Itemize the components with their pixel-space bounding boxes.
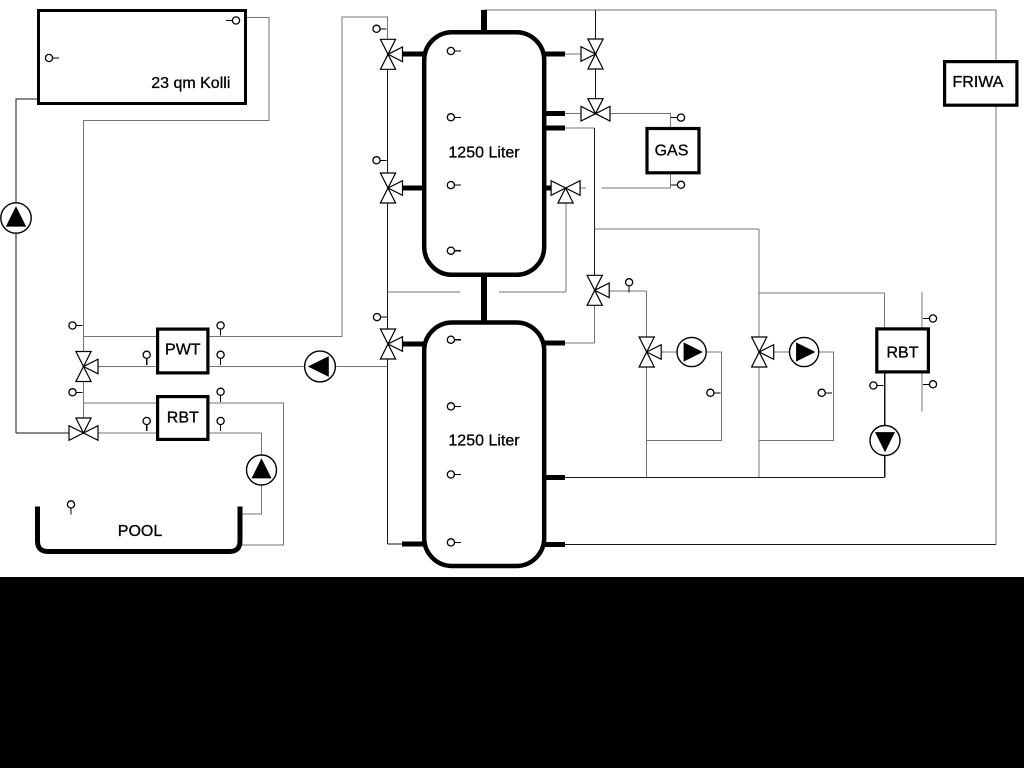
svg-text:RBT: RBT (887, 345, 919, 362)
svg-text:FRIWA: FRIWA (953, 74, 1004, 91)
svg-text:RBT: RBT (167, 410, 199, 427)
svg-text:GAS: GAS (655, 143, 689, 160)
svg-text:POOL: POOL (118, 523, 163, 540)
svg-text:1250 Liter: 1250 Liter (448, 145, 520, 162)
svg-text:1250 Liter: 1250 Liter (448, 433, 520, 450)
svg-text:23 qm Kolli: 23 qm Kolli (151, 75, 230, 92)
svg-text:PWT: PWT (165, 342, 201, 359)
